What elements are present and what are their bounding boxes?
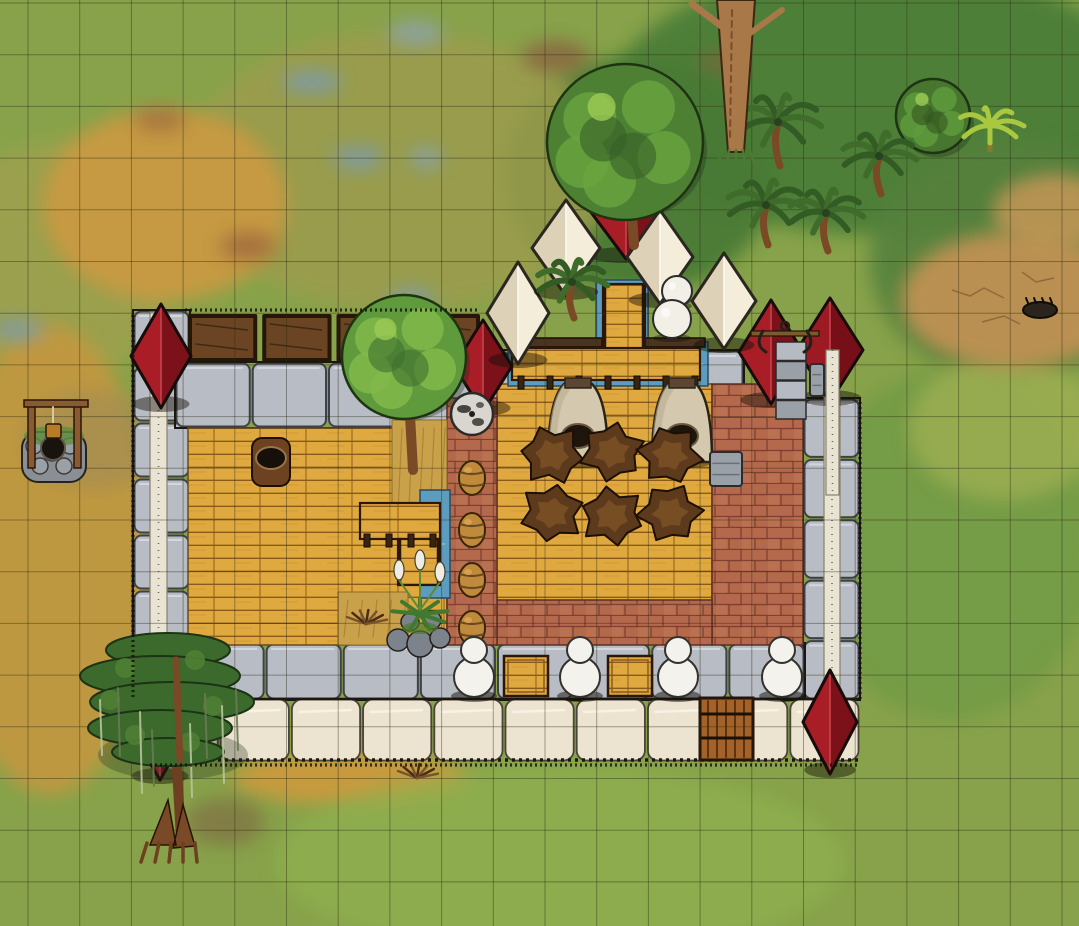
map-canvas[interactable] bbox=[0, 0, 1079, 926]
right-wall-beam-upper bbox=[826, 350, 839, 495]
millstone bbox=[451, 393, 493, 435]
stone-slab bbox=[710, 452, 742, 486]
forge-chimney bbox=[776, 342, 806, 419]
fallen-log bbox=[1023, 298, 1057, 318]
grain-sack bbox=[252, 438, 290, 486]
red-spot-1 bbox=[522, 41, 590, 73]
puddle-5 bbox=[388, 21, 444, 45]
white-boulder-large bbox=[653, 300, 691, 342]
red-spot-4 bbox=[134, 108, 186, 132]
barrel-1 bbox=[459, 461, 485, 495]
crate-right bbox=[608, 656, 652, 696]
crate-left bbox=[504, 656, 548, 696]
wooden-gate bbox=[700, 698, 753, 760]
red-spot-3 bbox=[185, 798, 265, 846]
red-spot-2 bbox=[220, 232, 276, 260]
puddle-1 bbox=[282, 71, 342, 93]
barrel-3 bbox=[459, 563, 485, 597]
forge-cylinder bbox=[810, 364, 824, 396]
barrel-2 bbox=[459, 513, 485, 547]
counter-top bbox=[360, 503, 440, 539]
right-brick-floor bbox=[712, 384, 803, 645]
battle-map-viewport bbox=[0, 0, 1079, 926]
